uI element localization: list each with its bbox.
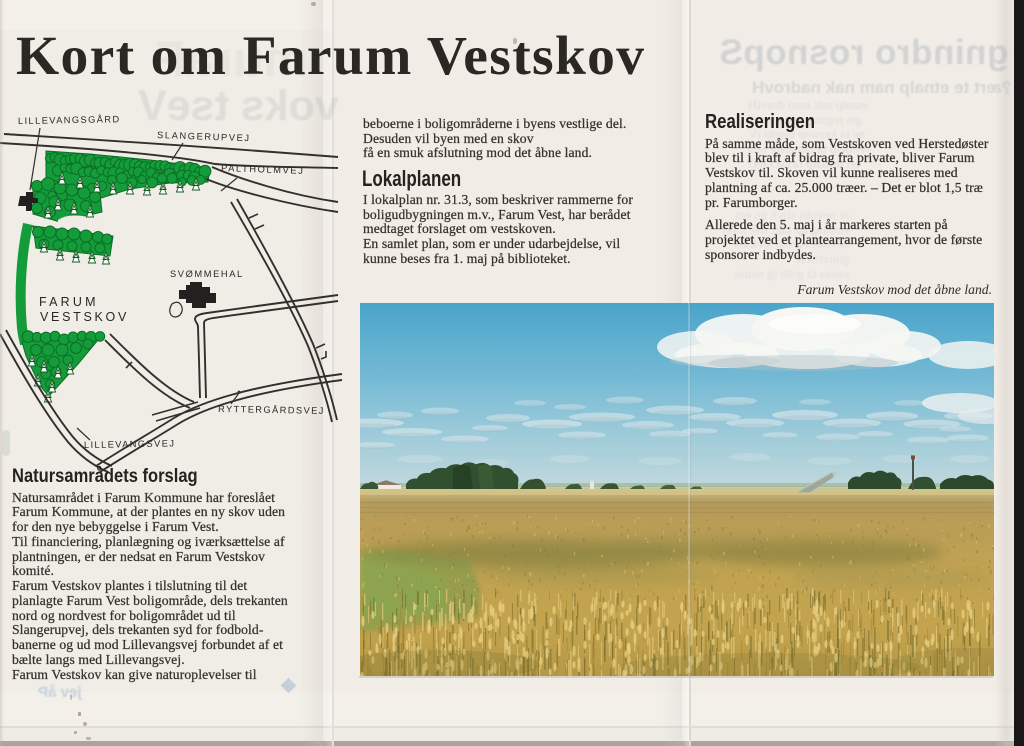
svg-text:LILLEVANGSVEJ: LILLEVANGSVEJ	[84, 438, 176, 450]
svg-text:LILLEVANGSGÅRD: LILLEVANGSGÅRD	[18, 114, 121, 126]
svg-text:PALTHOLMVEJ: PALTHOLMVEJ	[221, 163, 305, 176]
svg-text:FARUM: FARUM	[39, 295, 99, 309]
svg-text:VESTSKOV: VESTSKOV	[40, 310, 129, 324]
svg-text:SLANGERUPVEJ: SLANGERUPVEJ	[157, 130, 251, 143]
svg-text:RYTTERGÅRDSVEJ: RYTTERGÅRDSVEJ	[218, 404, 325, 416]
svg-text:SVØMMEHAL: SVØMMEHAL	[170, 269, 244, 279]
